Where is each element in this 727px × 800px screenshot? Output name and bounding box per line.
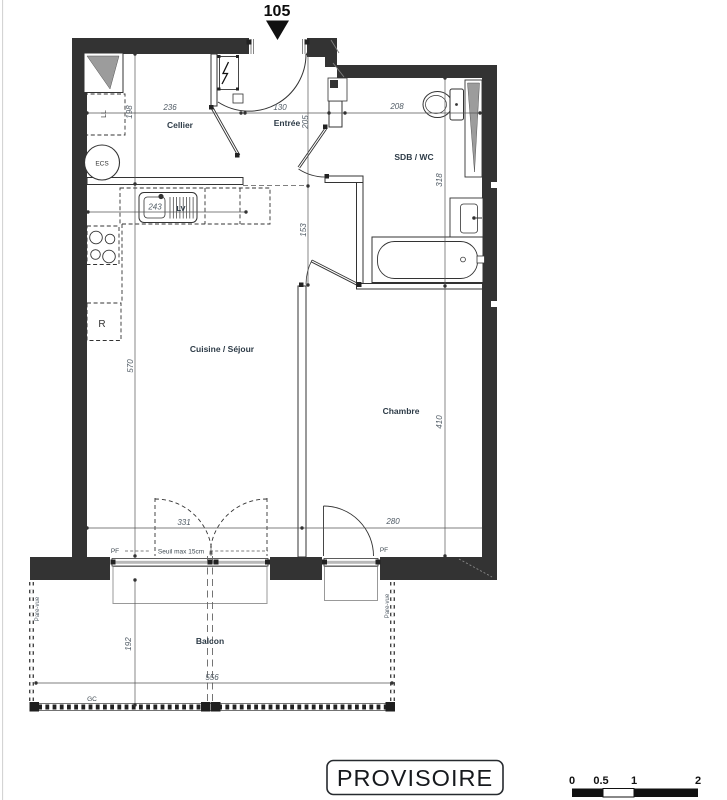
wall-joint-notch <box>491 301 498 307</box>
room-label-entree: Entrée <box>274 118 301 128</box>
scale-segment-white <box>603 789 634 798</box>
scale-tick-05: 0.5 <box>593 775 608 787</box>
water-heater: ECS <box>85 145 120 180</box>
fridge-label: R <box>98 319 105 330</box>
duct-top-right <box>465 80 482 177</box>
dim-sdb-width: 208 <box>389 102 404 111</box>
unit-number-label: 105 <box>264 3 291 20</box>
guardrail-label: GC <box>87 696 97 703</box>
dim-entree-depth: 205 <box>301 115 310 130</box>
washer-label: LL <box>101 110 108 118</box>
floorplan-drawing: 105 <box>0 0 727 800</box>
duct-top-left <box>84 53 123 93</box>
dishwasher-label: LV <box>176 204 185 213</box>
room-label-cuisine-sejour: Cuisine / Séjour <box>190 344 255 354</box>
pf-chambre-label: PF <box>380 547 388 554</box>
dim-couloir: 153 <box>299 223 308 237</box>
duct-bathroom-corner <box>328 78 347 101</box>
threshold-note: Seuil max 15cm <box>158 549 204 556</box>
room-label-sdb-wc: SDB / WC <box>394 152 433 162</box>
dim-sejour-depth: 570 <box>126 359 135 373</box>
chambre-french-door <box>324 506 374 556</box>
scale-segment-black2 <box>634 789 698 798</box>
entrance-arrow-icon <box>266 21 289 41</box>
toilet <box>423 89 464 120</box>
dim-sdb-depth: 318 <box>435 173 444 187</box>
interior-partitions <box>87 54 483 557</box>
room-label-chambre: Chambre <box>383 406 420 416</box>
pare-vue-left-label: Pare-vue <box>35 596 41 621</box>
electrical-panel <box>218 55 240 91</box>
annotation-labels: LL LV R PF Seuil max 15cm PF GC Pare-vue… <box>35 110 391 703</box>
dim-cellier-width: 236 <box>162 103 177 112</box>
scale-tick-1: 1 <box>631 775 637 787</box>
chambre-window-sill <box>325 567 378 601</box>
sejour-window-sill <box>113 567 267 604</box>
floorplan-page: 105 <box>0 0 727 800</box>
chambre-door <box>306 260 359 286</box>
page-edge-line <box>2 0 3 800</box>
scale-segment-black1 <box>572 789 603 798</box>
cellier-door <box>211 107 240 156</box>
dim-chambre-width: 280 <box>385 517 400 526</box>
scale-bar: 0 0.5 1 2 <box>569 775 701 797</box>
guardrail <box>30 702 396 712</box>
scale-tick-0: 0 <box>569 775 575 787</box>
sejour-window-glazing <box>112 561 268 564</box>
wall-joint-notch <box>491 182 498 188</box>
dim-chambre-depth: 410 <box>435 415 444 429</box>
chambre-window-glazing <box>324 561 378 564</box>
unit-header: 105 <box>264 3 291 40</box>
dim-entree-width: 130 <box>273 103 287 112</box>
dim-sejour-width: 331 <box>177 518 190 527</box>
bathroom-sink <box>450 198 483 237</box>
dim-cellier-depth: 198 <box>125 105 134 119</box>
dim-balcon-depth: 192 <box>124 637 133 651</box>
door-frame-return <box>233 94 243 103</box>
water-heater-label: ECS <box>95 161 109 168</box>
pare-vue-right-label: Pare-vue <box>385 593 391 618</box>
dim-balcon-width: 556 <box>205 673 219 682</box>
bathtub <box>372 237 485 283</box>
dim-counter: 243 <box>147 203 162 212</box>
dimension-labels: 236 130 208 198 205 318 153 570 410 331 … <box>124 102 444 682</box>
scale-tick-2: 2 <box>695 775 701 787</box>
pf-sejour-label: PF <box>111 548 119 555</box>
cooktop <box>87 226 119 265</box>
provisoire-stamp: PROVISOIRE <box>327 761 503 795</box>
bathroom-door <box>298 128 327 177</box>
room-label-balcon: Balcon <box>196 636 224 646</box>
room-label-cellier: Cellier <box>167 120 194 130</box>
stamp-label: PROVISOIRE <box>337 765 493 791</box>
